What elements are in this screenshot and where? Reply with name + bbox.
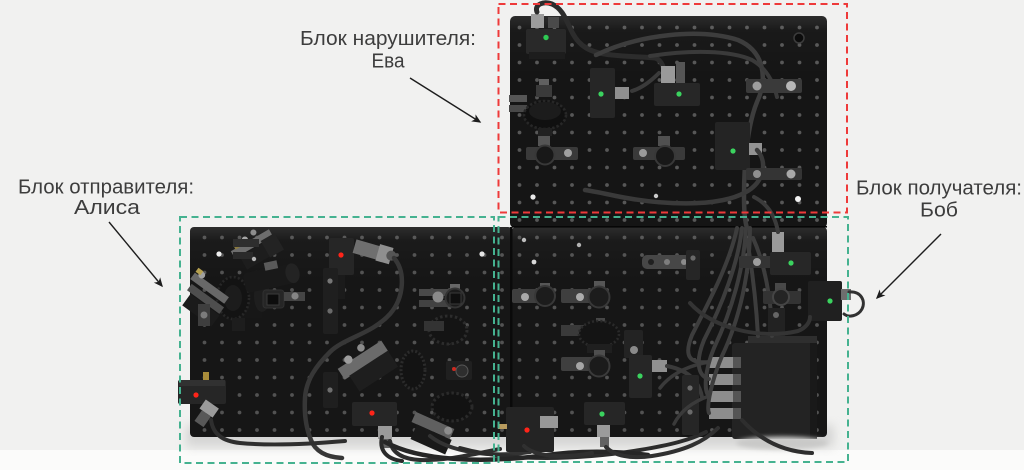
svg-text:Боб: Боб <box>920 200 958 222</box>
svg-text:Блок получателя:: Блок получателя: <box>856 178 1022 200</box>
svg-text:Блок отправителя:: Блок отправителя: <box>18 177 194 199</box>
svg-text:Ева: Ева <box>372 51 406 73</box>
svg-text:Алиса: Алиса <box>74 197 141 219</box>
svg-text:Блок нарушителя:: Блок нарушителя: <box>300 28 476 50</box>
